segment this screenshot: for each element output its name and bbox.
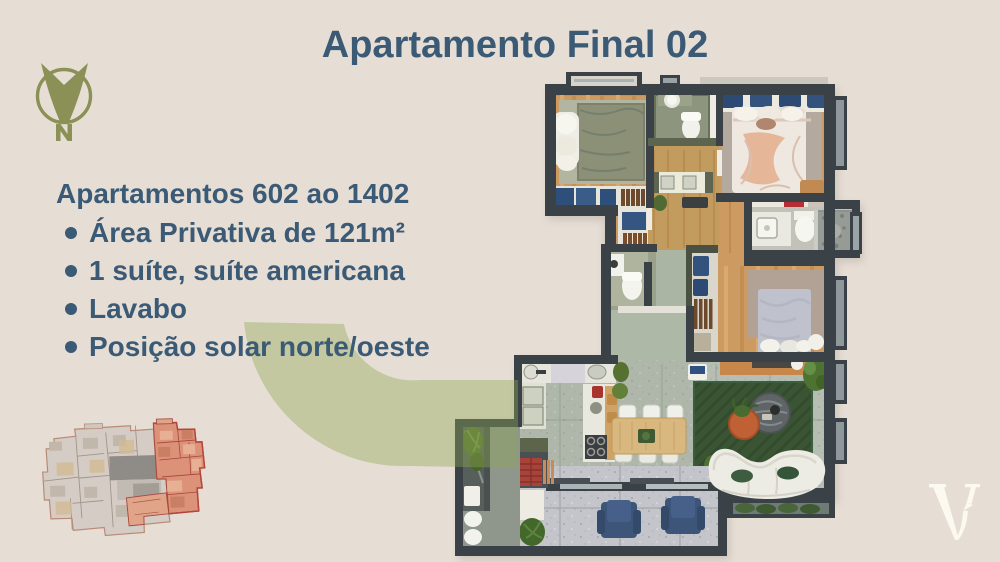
svg-text:Lavabo: Lavabo (89, 293, 187, 324)
svg-text:Área Privativa de 121m²: Área Privativa de 121m² (89, 217, 405, 248)
svg-text:1 suíte, suíte americana: 1 suíte, suíte americana (89, 255, 405, 286)
svg-text:Apartamento Final 02: Apartamento Final 02 (322, 24, 708, 66)
svg-text:Apartamentos 602 ao 1402: Apartamentos 602 ao 1402 (56, 178, 409, 209)
svg-text:Posição solar norte/oeste: Posição solar norte/oeste (89, 331, 430, 362)
